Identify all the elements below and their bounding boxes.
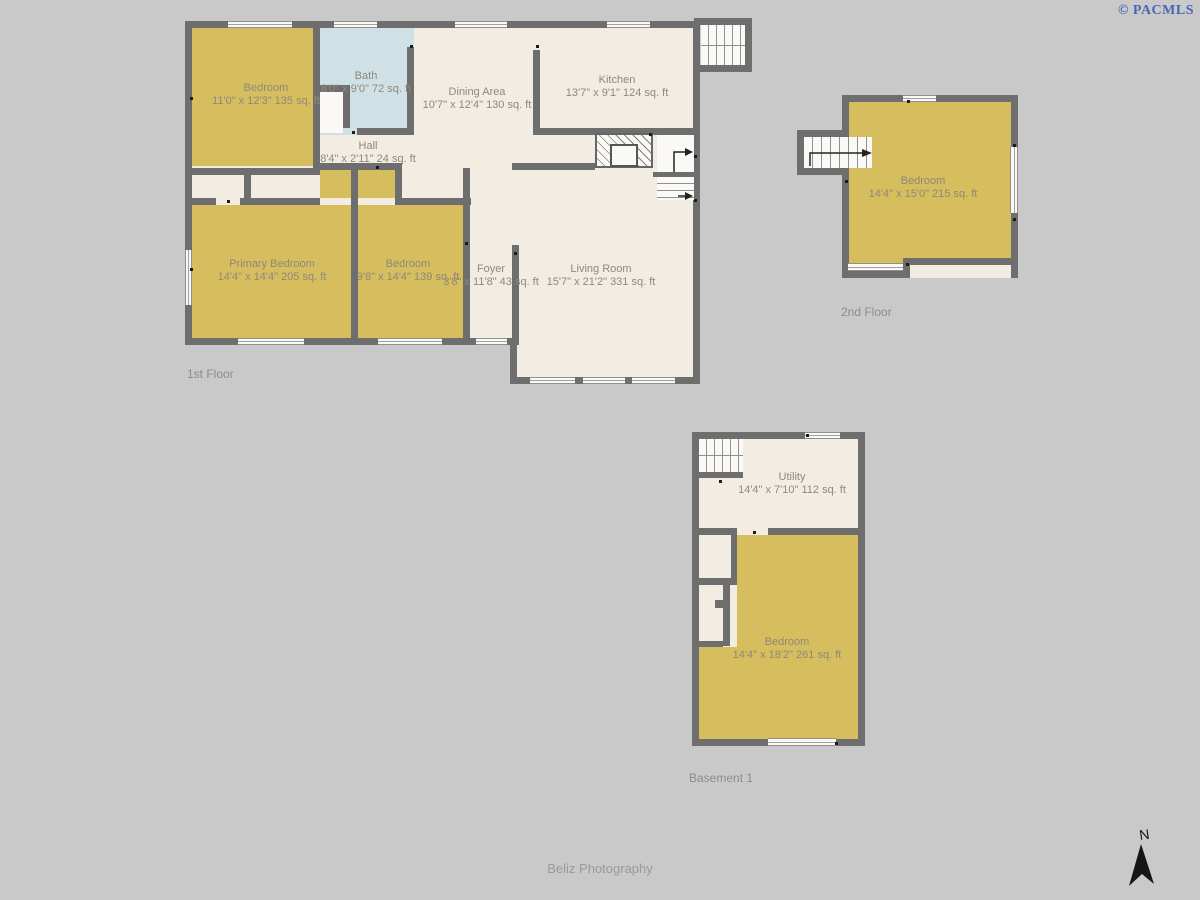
room-label-bedroom: Bedroom 14'4" x 18'2" 261 sq. ft: [733, 636, 842, 661]
wall: [858, 432, 865, 746]
photographer-credit: Beliz Photography: [547, 861, 653, 876]
wall: [699, 472, 743, 478]
door-marker: [806, 434, 809, 437]
door-marker: [753, 531, 756, 534]
north-arrow-icon: N: [1120, 824, 1170, 892]
wall: [699, 578, 737, 585]
north-label: N: [1138, 826, 1150, 843]
window: [805, 432, 840, 439]
room-dims: 14'4" x 18'2" 261 sq. ft: [733, 649, 842, 662]
floor-plan-basement: Utility 14'4" x 7'10" 112 sq. ft Bedroom…: [0, 0, 1200, 900]
door-marker: [719, 480, 722, 483]
pacmls-watermark: © PACMLS: [1118, 3, 1194, 19]
wall: [723, 585, 730, 646]
room-fill-bedroom: [699, 647, 737, 739]
room-name: Utility: [779, 471, 806, 484]
room-label-utility: Utility 14'4" x 7'10" 112 sq. ft: [738, 471, 846, 496]
wall: [699, 641, 723, 647]
wall: [692, 528, 737, 535]
room-dims: 14'4" x 7'10" 112 sq. ft: [738, 484, 846, 497]
wall: [692, 432, 699, 746]
window: [768, 738, 836, 746]
door-marker: [835, 742, 838, 745]
wall: [731, 535, 737, 578]
wall: [768, 528, 865, 535]
stairs-basement: [699, 439, 743, 472]
floor-label-basement: Basement 1: [689, 771, 753, 785]
room-name: Bedroom: [765, 636, 810, 649]
north-arrow: N: [1120, 824, 1170, 892]
floorplan-canvas: Bedroom 11'0" x 12'3" 135 sq. ft Bath 8'…: [0, 0, 1200, 900]
wall: [715, 600, 723, 608]
